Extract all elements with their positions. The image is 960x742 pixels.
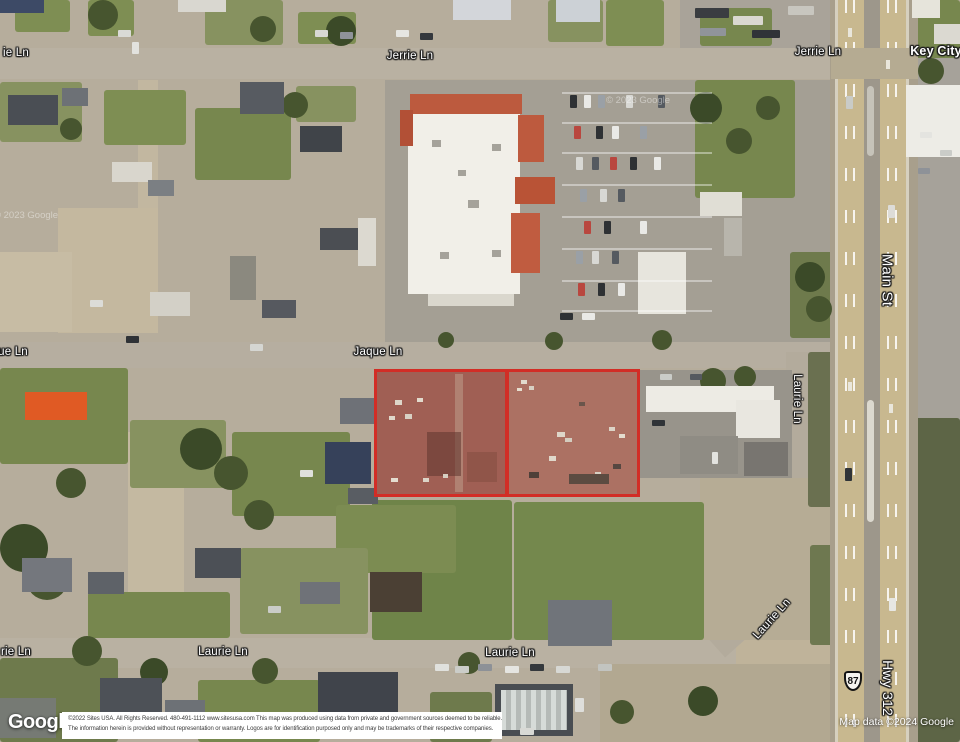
store-building [428,294,514,306]
street-label-laurie-ln-vertical: Laurie Ln [791,374,803,424]
highway-part [853,0,855,742]
parcel-detail [619,434,625,438]
car [690,374,702,380]
store-building [518,115,544,162]
street-label-hwy-312: Hwy 312 [880,660,896,716]
parcel-detail [565,438,572,442]
parking-stripe [562,184,712,186]
parking-stripe [562,152,712,154]
building [178,0,226,12]
highway-part [867,86,874,156]
building [744,442,788,476]
car [455,666,469,673]
parcel-detail [529,472,539,478]
car [700,28,726,36]
tree [726,128,752,154]
street-label-laurie-ln-partial: rie Ln [1,646,31,658]
place-label-key-city: Key City [910,44,960,58]
car [584,95,591,108]
parcel-detail [549,456,556,461]
tree [688,686,718,716]
building [150,292,190,316]
attribution-line-1: ©2022 Sites USA. All Rights Reserved. 48… [68,715,496,725]
tree [326,16,356,46]
car [752,30,780,38]
car [733,16,763,25]
building [300,582,340,604]
car [576,251,583,264]
building [906,85,960,157]
tree [56,468,86,498]
highway-part [895,0,897,742]
highway-part [831,48,918,79]
car [580,189,587,202]
parcel-detail [389,416,395,420]
car [530,664,544,671]
car [652,420,665,426]
car [918,168,930,174]
building [0,0,44,13]
tree [88,0,118,30]
building [112,162,152,182]
road-surface [0,342,852,368]
car [560,313,573,320]
car [940,150,952,156]
tree [72,636,102,666]
car [598,283,605,296]
road-surface [58,208,158,333]
car [578,283,585,296]
car [315,30,328,37]
highway-part [848,28,852,37]
car [788,6,814,15]
road-surface [600,664,838,742]
building [556,0,600,22]
building [8,95,58,125]
building [22,558,72,592]
store-building [432,140,441,147]
tree [918,58,944,84]
parcel-detail [423,478,429,482]
car [570,95,577,108]
store-building [492,250,501,257]
car [584,221,591,234]
tree [252,658,278,684]
building [320,228,362,250]
store-building [440,252,449,259]
grass-field [88,592,230,638]
car [618,189,625,202]
tree [282,92,308,118]
parcel-detail [529,386,534,390]
parcel-detail [427,432,461,476]
car [598,664,612,671]
parking-stripe [562,280,712,282]
building [724,218,742,256]
car [888,205,895,218]
building [736,400,780,438]
street-label-jaque-ln-partial: ue Ln [0,346,28,358]
parcel-detail [417,398,423,402]
building [370,572,422,612]
building [148,180,174,196]
satellite-map[interactable]: ie Ln Jerrie Ln Jerrie Ln Key City Main … [0,0,960,742]
grass-field [195,108,291,180]
building [325,442,371,484]
building [638,252,686,314]
car [520,728,534,735]
car [340,32,353,39]
building [501,690,567,730]
car [846,96,853,109]
car [396,30,409,37]
car [505,666,519,673]
store-building [408,114,520,294]
building [453,0,511,20]
car [612,251,619,264]
car [654,157,661,170]
car [582,313,595,320]
map-data-credit: Map data ©2024 Google [839,716,954,728]
tree [734,366,756,388]
car [478,664,492,671]
tree [214,456,248,490]
highway-part [838,0,864,742]
building [700,192,742,216]
building [195,548,241,578]
tree [60,118,82,140]
store-building [492,144,501,151]
street-label-main-st: Main St [879,254,896,306]
car [575,698,584,712]
building [358,218,376,266]
car [592,251,599,264]
parking-stripe [562,310,712,312]
building [934,24,960,44]
street-label-jerrie-ln-partial: ie Ln [3,47,29,59]
car [889,598,896,611]
parcel-detail [521,380,527,384]
store-building [468,200,479,208]
car [640,126,647,139]
car [640,221,647,234]
car [118,30,131,37]
highway-part [880,0,906,742]
tree [545,332,563,350]
parking-stripe [562,92,712,94]
parcel-detail [443,474,448,478]
google-watermark: © 2023 Google [0,210,58,221]
tree [795,262,825,292]
highway-part [845,0,847,742]
street-label-laurie-ln-east: Laurie Ln [485,647,535,659]
parcel-detail [557,432,565,437]
car [126,336,139,343]
tree [610,700,634,724]
parking-stripe [562,216,712,218]
car [612,126,619,139]
parcel-detail [609,427,615,431]
building [300,126,342,152]
tree [756,96,780,120]
route-number: 87 [847,676,858,687]
parking-stripe [562,122,712,124]
car [604,221,611,234]
tree [806,296,832,322]
car [630,157,637,170]
car [610,157,617,170]
building [912,0,940,18]
grass-field [104,90,186,145]
tree [652,330,672,350]
store-building [458,170,466,176]
car [435,664,449,671]
car [845,468,852,481]
building [62,88,88,106]
parcel-detail [405,414,412,419]
highway-part [886,60,890,69]
parcel-detail [579,402,585,406]
building [548,600,612,646]
street-label-jerrie-ln: Jerrie Ln [387,50,434,62]
car [695,8,729,18]
google-watermark: © 2023 Google [606,95,670,106]
building [88,572,124,594]
car [618,283,625,296]
highlighted-parcel-outline[interactable] [374,369,640,497]
grass-field [606,0,664,46]
building [230,256,256,300]
car [600,189,607,202]
building [25,392,87,420]
car [90,300,103,307]
car [300,470,313,477]
highway-part [848,382,852,391]
car [250,344,263,351]
car [268,606,281,613]
building [262,300,296,318]
car [598,95,605,108]
store-building [515,177,555,204]
street-label-laurie-ln: Laurie Ln [198,646,248,658]
tree [438,332,454,348]
car [576,157,583,170]
parcel-detail [395,400,402,405]
street-label-jerrie-ln-east: Jerrie Ln [795,46,842,58]
parcel-detail [391,478,398,482]
car [712,452,718,464]
road-surface [0,252,72,332]
attribution-box: ©2022 Sites USA. All Rights Reserved. 48… [62,712,502,739]
highway-part [889,404,893,413]
attribution-line-2: The information herein is provided witho… [68,725,496,735]
car [920,132,932,138]
store-building [400,110,413,146]
building [680,436,738,474]
store-building [410,94,522,114]
car [596,126,603,139]
tree [244,500,274,530]
highway-part [887,0,889,742]
tree [250,16,276,42]
car [592,157,599,170]
car [420,33,433,40]
highway-part [867,400,874,522]
parcel-detail [517,388,522,391]
tree [690,92,722,124]
parking-stripe [562,248,712,250]
car [556,666,570,673]
building [240,82,284,114]
parcel-detail [569,474,609,484]
street-label-jaque-ln: Jaque Ln [354,346,403,358]
car [132,42,139,54]
store-building [511,213,540,273]
car [660,374,672,380]
parcel-detail [467,452,497,482]
car [574,126,581,139]
parcel-detail [613,464,621,469]
